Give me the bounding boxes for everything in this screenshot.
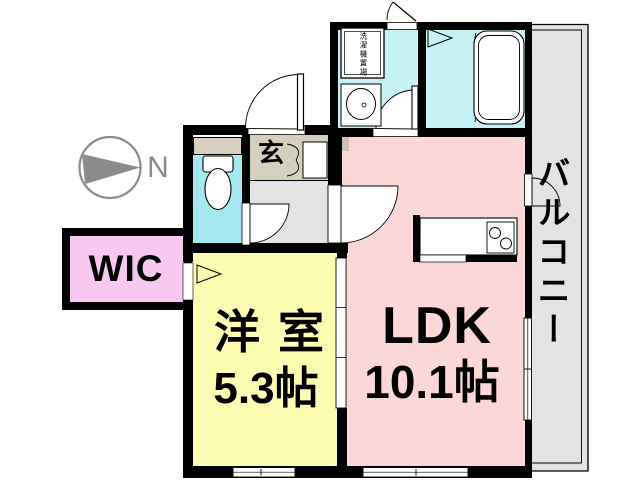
room-label-western: 洋室 [196, 306, 336, 358]
entrance-door-leaf [298, 74, 304, 130]
stove-burner-icon [501, 238, 512, 249]
floor-plan: LDK 10.1帖 洋室 5.3帖 WIC 玄 バルコニー 洗濯機置場 N [0, 0, 640, 480]
bathtub-icon [474, 31, 524, 124]
toilet-door-threshold [242, 203, 250, 245]
ldk-door-swing [341, 186, 398, 243]
toilet-door-swing [250, 204, 289, 243]
laundry-area-label: 洗濯機置場 [356, 32, 369, 76]
room-size-western: 5.3帖 [196, 364, 336, 414]
room-label-ldk: LDK [347, 300, 527, 352]
washroom-door-leaf [412, 86, 418, 129]
stove-burner-icon [490, 228, 501, 239]
north-compass-arrow [82, 154, 141, 184]
toilet-bowl-icon [205, 169, 231, 210]
top-door-swing [387, 2, 393, 20]
wic-opening-arrow-icon [197, 265, 221, 283]
kitchen-counter-front [420, 255, 466, 262]
washroom-door-threshold [373, 129, 418, 137]
washroom-door-swing [376, 90, 415, 129]
stove-icon [487, 222, 514, 253]
top-door-leaf [393, 2, 416, 21]
shoe-cabinet [303, 142, 327, 178]
room-label-wic: WIC [66, 250, 186, 287]
entrance-door-swing [245, 75, 298, 130]
compass-n-label: N [142, 150, 174, 186]
room-size-ldk: 10.1帖 [342, 356, 522, 408]
sink-icon [347, 89, 376, 120]
ldk-door-threshold [328, 185, 342, 243]
top-door-threshold [387, 23, 417, 30]
bath-door-arrow-icon [428, 29, 452, 47]
room-label-balcony: バルコニー [539, 146, 575, 361]
room-label-entrance: 玄 [249, 138, 293, 168]
